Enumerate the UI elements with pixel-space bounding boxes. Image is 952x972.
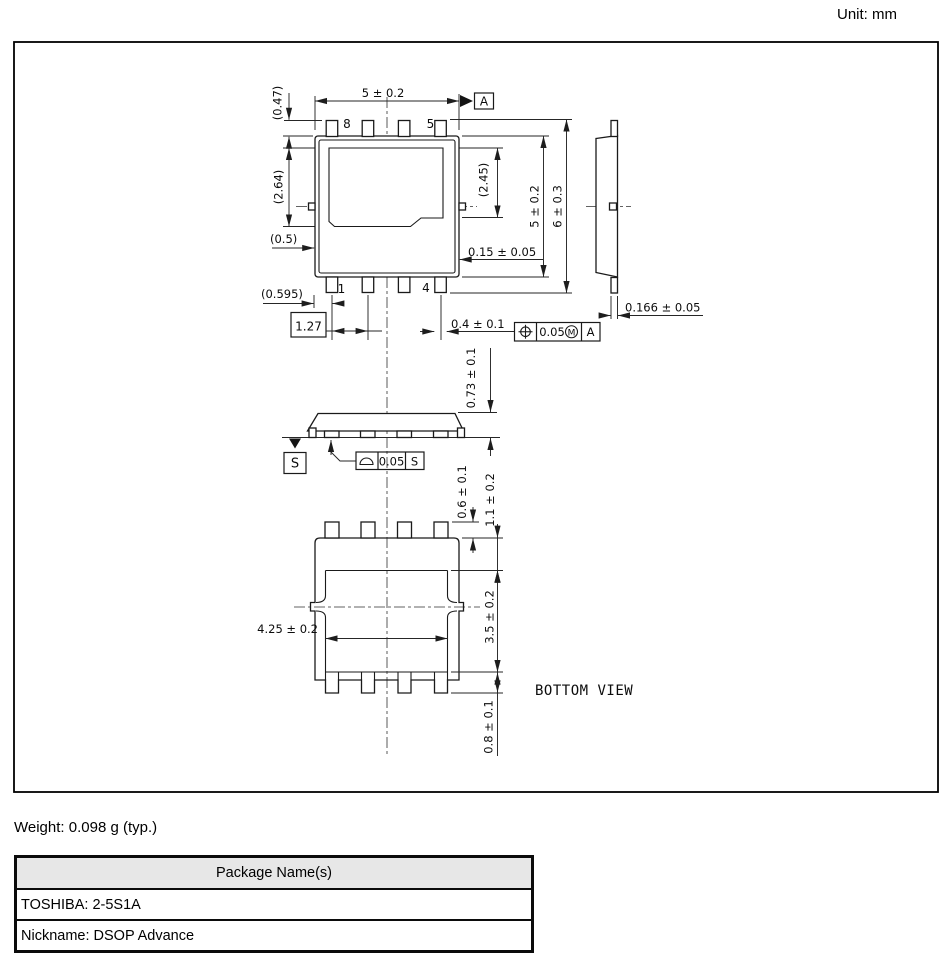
mmc-modifier-icon: M [566,326,578,339]
dim-body-length-label: 5 ± 0.2 [528,185,542,228]
dim-pin-protrusion-label: (0.47) [271,86,285,121]
profile-datum-label: S [411,455,418,469]
body-profile-outline [308,414,464,432]
position-tolerance-label: 0.05 [539,325,565,339]
side-tab-right [459,203,466,210]
dim-body-width-label: 5 ± 0.2 [362,86,405,100]
dim-lead-thickness-label: 0.166 ± 0.05 [625,301,700,315]
profile-tolerance-label: 0.05 [379,455,405,469]
dim-lead-width-label: 0.4 ± 0.1 [451,317,505,331]
dim-pad-width-bottom: 4.25 ± 0.2 [257,622,447,639]
position-datum-label: A [587,325,595,339]
bottom-view: 0.6 ± 0.1 1.1 ± 0.2 3.5 ± 0.2 0.8 ± 0.1 [257,465,633,756]
dim-pad-tab-length: 0.8 ± 0.1 [451,672,503,756]
dim-edge-step-label: 0.15 ± 0.05 [468,245,536,259]
profile-tolerance-frame: 0.05 S [331,440,424,470]
dim-body-height-label: 0.73 ± 0.1 [464,348,478,409]
position-tolerance-icon [519,325,533,339]
dim-pad-tab-length-label: 0.8 ± 0.1 [482,700,496,754]
pin-number-8: 8 [343,117,351,131]
bottom-exposed-pad [316,571,457,673]
side-view: 0.166 ± 0.05 [596,121,703,320]
dim-body-height: 0.73 ± 0.1 [458,348,497,456]
drawing-frame [14,42,938,792]
dim-pad-length-bottom: 3.5 ± 0.2 [483,571,498,673]
side-tab-left [309,203,316,210]
top-view: 8 5 1 4 [309,117,466,296]
dim-edge-to-pin1: (0.595) [261,287,441,340]
front-view: S 0.05 S 0.73 ± 0.1 [282,348,500,474]
bottom-view-leads [325,522,448,538]
dim-pad-width-bottom-label: 4.25 ± 0.2 [257,622,318,636]
package-name-table: Package Name(s) TOSHIBA: 2-5S1A Nickname… [14,855,534,953]
dim-lead-length-bottom-label: 0.6 ± 0.1 [455,465,469,519]
profile-of-surface-icon [360,458,373,465]
dim-pad-side-offset-label: (0.5) [270,232,297,246]
package-table-header: Package Name(s) [17,858,531,890]
dim-pin-protrusion: (0.47) [271,86,323,151]
bottom-view-label: BOTTOM VIEW [535,683,633,699]
pin-number-5: 5 [427,117,435,131]
dim-lead-width: 0.4 ± 0.1 0.05 M A [420,317,600,341]
dim-pad-height-label: (2.64) [272,170,286,205]
pin-number-1: 1 [338,282,346,296]
dim-pad-height-right-label: (2.45) [477,163,491,198]
datasheet-page: Unit: mm 5 ± 0.2 A [0,0,952,972]
package-outline-drawing: 5 ± 0.2 A (0.47) (2.64) [0,0,952,800]
dim-pin-pitch-label: 1.27 [295,320,322,334]
datum-a-label: A [480,95,489,109]
weight-note: Weight: 0.098 g (typ.) [14,819,157,836]
position-tolerance-frame: 0.05 M A [515,323,601,342]
dim-pad-edge-offset-label: 1.1 ± 0.2 [483,473,497,527]
datum-triangle-icon [460,95,473,107]
dim-pad-length-bottom-label: 3.5 ± 0.2 [483,590,497,644]
table-row: TOSHIBA: 2-5S1A [17,890,531,921]
mmc-modifier-label: M [568,328,576,338]
package-body-outline [315,136,459,277]
dim-lead-thickness: 0.166 ± 0.05 [599,296,703,319]
table-row: Nickname: DSOP Advance [17,921,531,950]
datum-triangle-icon [289,439,301,449]
dim-edge-to-pin1-label: (0.595) [261,287,303,301]
bottom-comb-edges [326,672,448,680]
dim-overall-length-label: 6 ± 0.3 [551,185,565,228]
datum-s-label: S [291,457,299,472]
pin-number-4: 4 [422,281,430,295]
dim-overall-length: 6 ± 0.3 [450,120,572,294]
datum-s: S [284,439,306,474]
